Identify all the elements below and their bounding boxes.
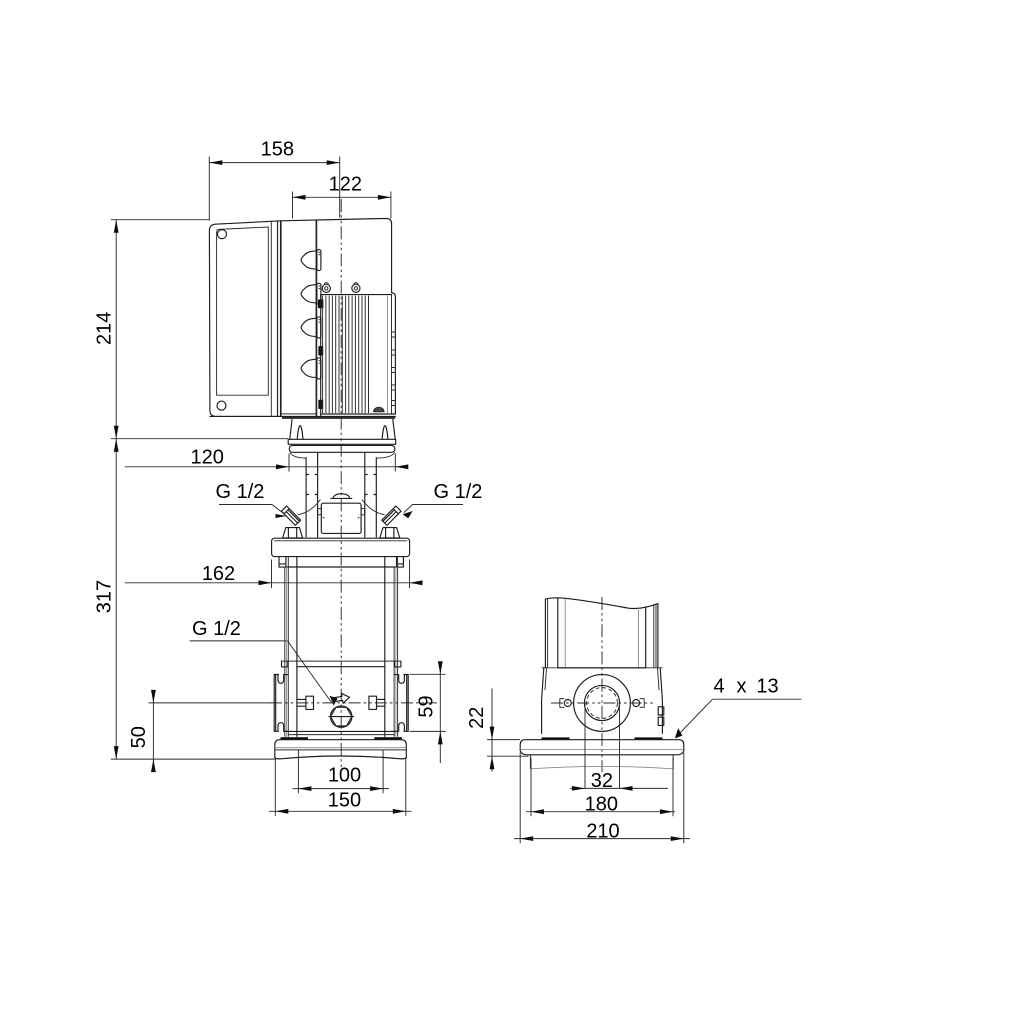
svg-text:22: 22 xyxy=(466,707,488,729)
svg-text:G 1/2: G 1/2 xyxy=(434,481,483,503)
svg-text:100: 100 xyxy=(328,765,361,787)
svg-text:158: 158 xyxy=(261,139,294,161)
svg-text:13: 13 xyxy=(756,675,778,697)
svg-text:4: 4 xyxy=(713,675,724,697)
svg-text:50: 50 xyxy=(128,726,150,748)
svg-text:G 1/2: G 1/2 xyxy=(192,618,241,640)
svg-text:120: 120 xyxy=(191,447,224,469)
svg-text:32: 32 xyxy=(591,770,613,792)
svg-text:214: 214 xyxy=(94,312,116,345)
svg-text:317: 317 xyxy=(94,580,116,613)
svg-text:G 1/2: G 1/2 xyxy=(216,481,265,503)
svg-text:59: 59 xyxy=(415,695,437,717)
svg-text:150: 150 xyxy=(328,790,361,812)
svg-text:122: 122 xyxy=(329,174,362,196)
svg-text:162: 162 xyxy=(202,563,235,585)
svg-text:x: x xyxy=(737,675,747,697)
